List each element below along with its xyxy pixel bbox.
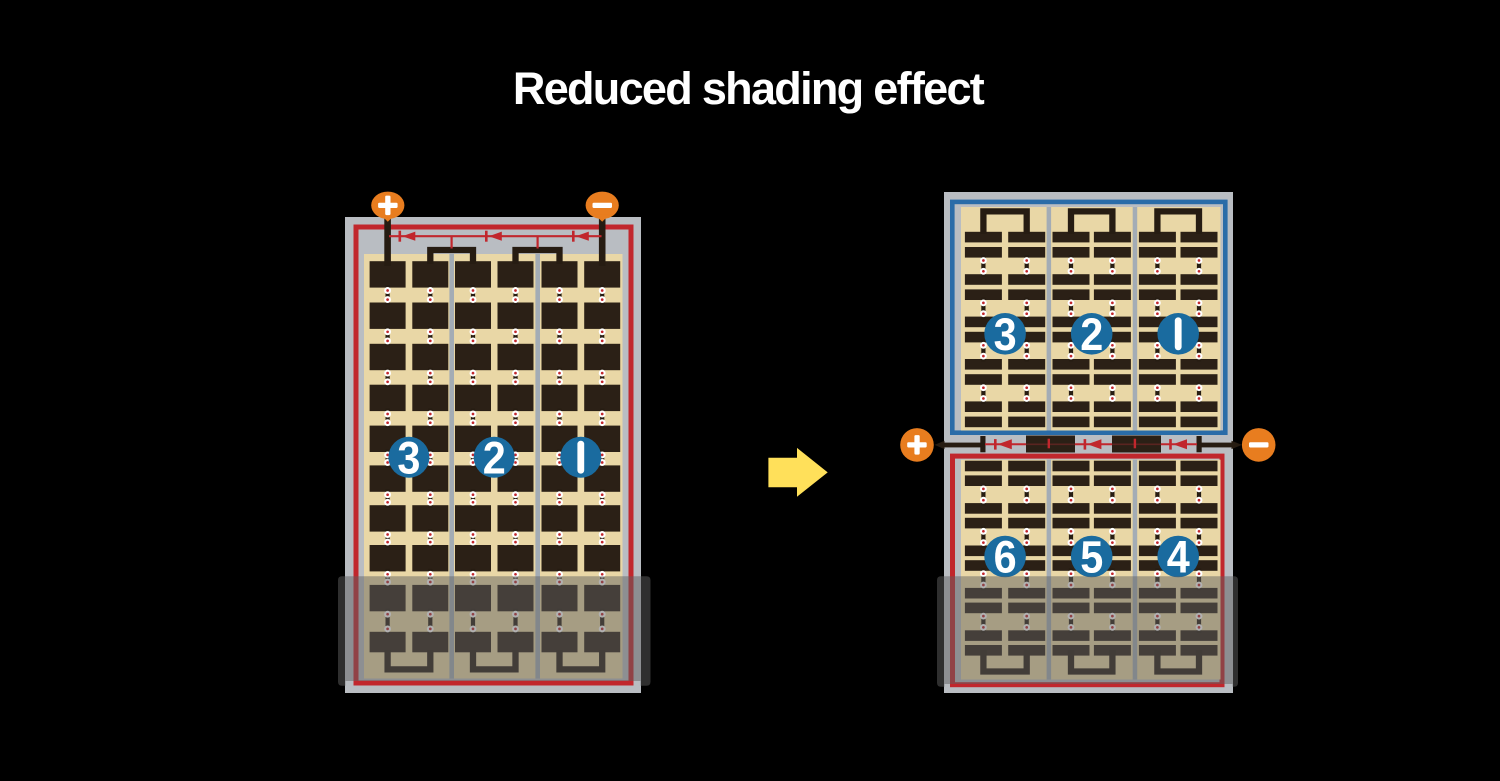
svg-text:5: 5 [1080,533,1103,583]
svg-text:3: 3 [994,310,1017,360]
svg-text:4: 4 [1167,533,1190,583]
svg-text:3: 3 [397,434,420,484]
svg-text:2: 2 [483,434,506,484]
svg-text:2: 2 [1080,310,1103,360]
svg-text:6: 6 [994,533,1017,583]
svg-text:Reduced shading effect: Reduced shading effect [513,63,985,114]
